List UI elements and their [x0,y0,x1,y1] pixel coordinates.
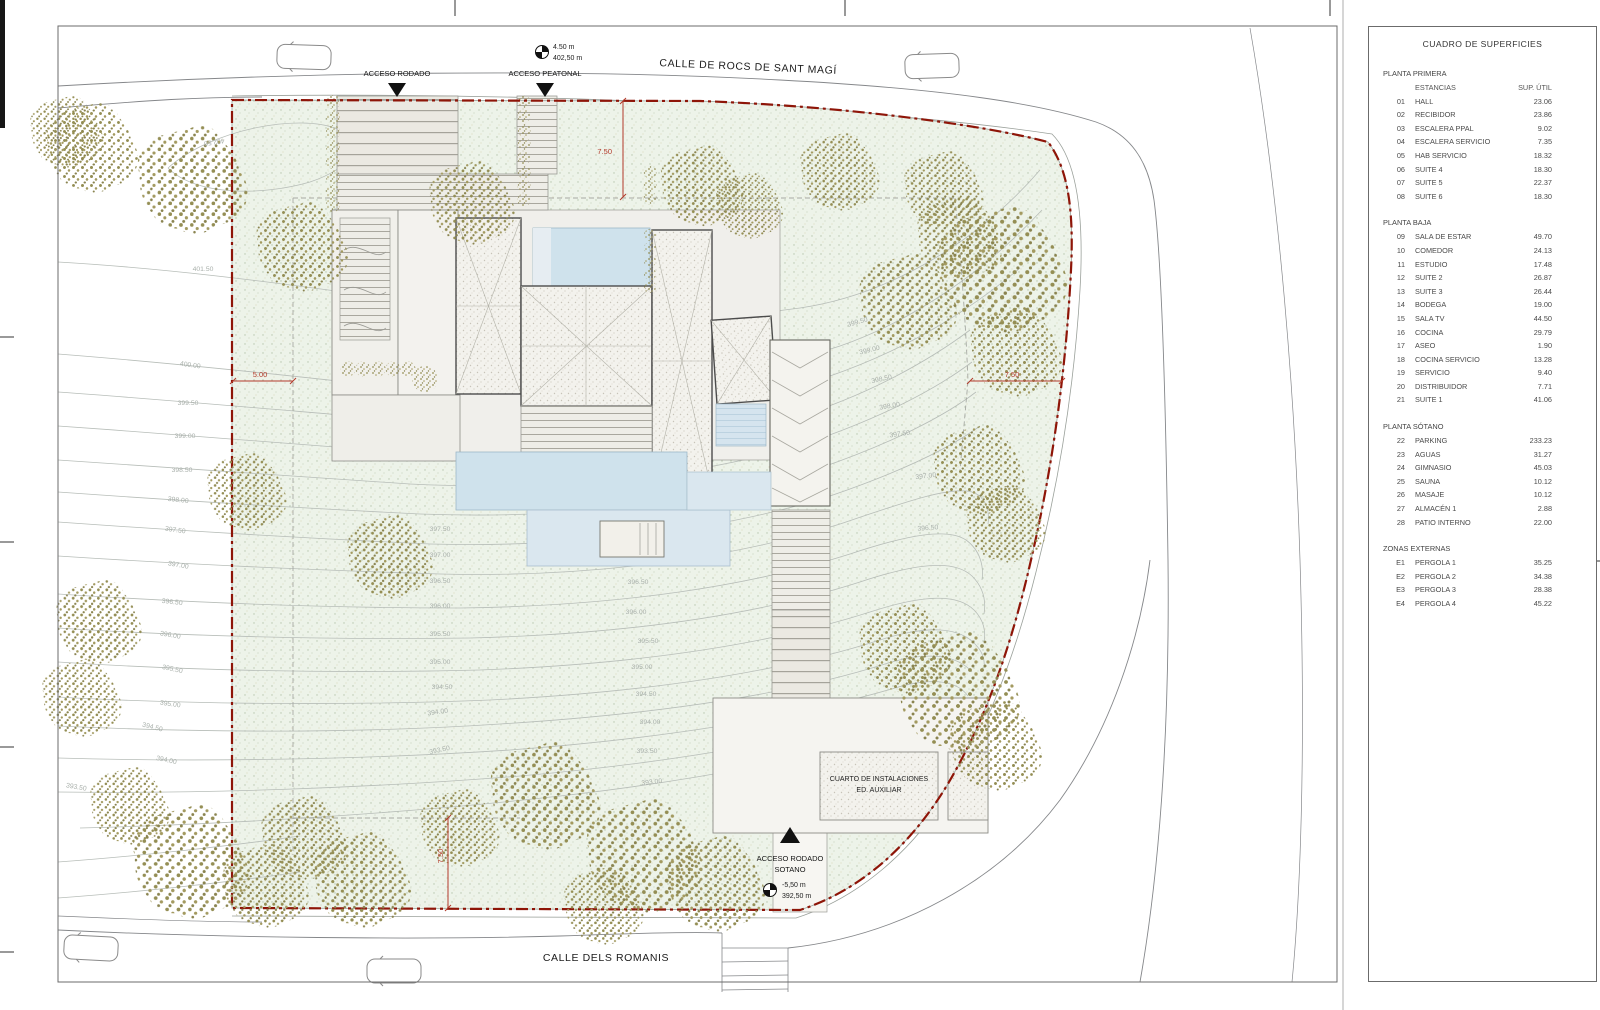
table-header-row: ESTANCIASSUP. ÚTIL [1369,83,1596,97]
room-area: 2.88 [1538,504,1552,513]
room-number: 23 [1383,450,1405,459]
room-number: 04 [1383,137,1405,146]
contour-label: 397.50 [164,526,186,536]
car-icon [63,932,118,965]
stair-main [340,218,390,340]
room-name: SALA DE ESTAR [1415,232,1471,241]
room-area: 18.32 [1534,151,1552,160]
roof-d [711,316,777,404]
car-icon [276,41,331,73]
contour-label: 395.00 [632,664,653,671]
table-row: 14BODEGA19.00 [1369,300,1596,314]
room-name: SUITE 4 [1415,165,1443,174]
pool-right-strip [687,472,771,510]
room-area: 1.90 [1538,341,1552,350]
table-row: 12SUITE 226.87 [1369,273,1596,287]
room-number: 10 [1383,246,1405,255]
contour-label: 395.50 [638,638,659,645]
room-number: 27 [1383,504,1405,513]
room-number: 21 [1383,395,1405,404]
room-area: 233.23 [1530,436,1552,445]
room-area: 9.02 [1538,124,1552,133]
table-row: 06SUITE 418.30 [1369,165,1596,179]
contour-label: 396.50 [161,598,183,607]
table-row: E2PERGOLA 234.38 [1369,572,1596,586]
table-row: 16COCINA29.79 [1369,328,1596,342]
room-name: SUITE 2 [1415,273,1443,282]
contour-label: 395.00 [159,700,181,710]
acceso-peatonal-label: ACCESO PEATONAL [508,69,581,78]
room-name: PERGOLA 3 [1415,585,1456,594]
table-row: 03ESCALERA PPAL9.02 [1369,124,1596,138]
table-row: 24GIMNASIO45.03 [1369,463,1596,477]
table-sections: PLANTA PRIMERAESTANCIASSUP. ÚTIL01HALL23… [1369,69,1596,613]
table-row: 22PARKING233.23 [1369,436,1596,450]
room-area: 23.06 [1534,97,1552,106]
contour-label: 400.00 [179,361,201,371]
table-row: E3PERGOLA 328.38 [1369,585,1596,599]
contour-label: 394.50 [636,691,657,698]
room-area: 10.12 [1534,477,1552,486]
room-area: 26.44 [1534,287,1552,296]
room-name: ESTUDIO [1415,260,1447,269]
room-name: GIMNASIO [1415,463,1452,472]
contour-label: 396.00 [159,630,181,641]
room-number: 01 [1383,97,1405,106]
table-row: E4PERGOLA 445.22 [1369,599,1596,613]
room-area: 45.03 [1534,463,1552,472]
room-name: SUITE 5 [1415,178,1443,187]
room-area: 31.27 [1534,450,1552,459]
aux-room [820,752,938,820]
room-number: 09 [1383,232,1405,241]
room-area: 23.86 [1534,110,1552,119]
level-marker-icon [536,46,549,59]
court-lower [332,395,460,461]
street-name-top: CALLE DE ROCS DE SANT MAGÍ [659,56,837,77]
room-number: 14 [1383,300,1405,309]
room-area: 44.50 [1534,314,1552,323]
room-area: 26.87 [1534,273,1552,282]
car-icon [904,50,959,82]
room-name: PATIO INTERNO [1415,518,1471,527]
contour-label: 397.50 [430,526,451,533]
table-section-title: PLANTA SÓTANO [1369,422,1596,431]
contour-label: 396.50 [430,578,451,585]
room-name: ESCALERA PPAL [1415,124,1474,133]
contour-label: 401.50 [193,266,214,273]
table-row: 13SUITE 326.44 [1369,287,1596,301]
room-name: MASAJE [1415,490,1444,499]
room-number: 25 [1383,477,1405,486]
table-row: 26MASAJE10.12 [1369,490,1596,504]
table-section-title: PLANTA PRIMERA [1369,69,1596,78]
contour-label: 394.00 [155,755,177,766]
contour-label: 394.50 [432,684,453,691]
contour-label: 394.00 [640,719,661,726]
table-row: 23AGUAS31.27 [1369,450,1596,464]
room-number: 26 [1383,490,1405,499]
room-area: 45.22 [1534,599,1552,608]
room-number: 13 [1383,287,1405,296]
room-area: SUP. ÚTIL [1518,83,1552,92]
room-number: 17 [1383,341,1405,350]
table-row: 25SAUNA10.12 [1369,477,1596,491]
table-row: 15SALA TV44.50 [1369,314,1596,328]
table-section: PLANTA SÓTANO22PARKING233.2323AGUAS31.27… [1369,422,1596,531]
acceso-peatonal-arrow [536,83,554,97]
contour-label: 395.50 [161,664,183,675]
aux-room-label2: ED. AUXILIAR [856,787,901,794]
table-row: 27ALMACÉN 12.88 [1369,504,1596,518]
room-number: E3 [1383,585,1405,594]
roof-b [521,286,652,406]
acceso-rodado-sotano-label: ACCESO RODADO [757,854,824,863]
table-row: 17ASEO1.90 [1369,341,1596,355]
site-plan: CALLE DE ROCS DE SANT MAGÍCALLE DELS ROM… [0,0,1600,1010]
room-name: PERGOLA 1 [1415,558,1456,567]
room-name: BODEGA [1415,300,1446,309]
street-name-bottom: CALLE DELS ROMANIS [543,952,669,964]
terrace-steps [521,406,652,452]
room-name: RECIBIDOR [1415,110,1456,119]
room-name: SUITE 6 [1415,192,1443,201]
contour-label: 393.50 [637,748,658,755]
room-name: ALMACÉN 1 [1415,504,1456,513]
room-area: 13.28 [1534,355,1552,364]
room-name: HALL [1415,97,1433,106]
room-area: 18.30 [1534,192,1552,201]
table-title: CUADRO DE SUPERFICIES [1369,39,1596,49]
table-row: 10COMEDOR24.13 [1369,246,1596,260]
level-marker-icon [764,884,777,897]
contour-label: 398.00 [167,496,189,505]
room-area: 29.79 [1534,328,1552,337]
room-area: 24.13 [1534,246,1552,255]
table-row: 19SERVICIO9.40 [1369,368,1596,382]
room-number: 06 [1383,165,1405,174]
room-area: 22.37 [1534,178,1552,187]
table-row: 11ESTUDIO17.48 [1369,260,1596,274]
room-number: 28 [1383,518,1405,527]
room-area: 19.00 [1534,300,1552,309]
driveway-ramp [337,96,458,174]
room-number: 08 [1383,192,1405,201]
pergola-east [770,340,830,506]
table-row: 20DISTRIBUIDOR7.71 [1369,382,1596,396]
room-number: 03 [1383,124,1405,133]
room-area: 9.40 [1538,368,1552,377]
room-name: ESCALERA SERVICIO [1415,137,1490,146]
drawing-sheet: CALLE DE ROCS DE SANT MAGÍCALLE DELS ROM… [0,0,1600,1010]
contour-label: 396.00 [626,609,647,616]
stairs-east-upper [772,510,830,610]
contour-label: 395.50 [430,631,451,638]
room-name: SERVICIO [1415,368,1450,377]
contour-label: 397.00 [167,560,189,571]
room-area: 49.70 [1534,232,1552,241]
level-bottom-height: -5,50 m [782,882,806,889]
room-number: 02 [1383,110,1405,119]
room-area: 17.48 [1534,260,1552,269]
contour-label: 393.50 [65,782,87,793]
dim-750-top: 7.50 [597,147,612,156]
contour-label: 396.50 [628,579,649,586]
room-name: PARKING [1415,436,1447,445]
room-number: E1 [1383,558,1405,567]
acceso-rodado-label: ACCESO RODADO [364,69,431,78]
room-number: 19 [1383,368,1405,377]
room-area: 10.12 [1534,490,1552,499]
contour-label: 398.50 [172,467,193,474]
room-number: 20 [1383,382,1405,391]
table-section-title: ZONAS EXTERNAS [1369,544,1596,553]
table-row: 18COCINA SERVICIO13.28 [1369,355,1596,369]
aux-room-label: CUARTO DE INSTALACIONES [830,776,929,783]
table-section-title: PLANTA BAJA [1369,218,1596,227]
room-name: COCINA SERVICIO [1415,355,1480,364]
contour-label: 395.00 [430,659,451,666]
table-row: 01HALL23.06 [1369,97,1596,111]
table-section: PLANTA PRIMERAESTANCIASSUP. ÚTIL01HALL23… [1369,69,1596,205]
table-row: 04ESCALERA SERVICIO7.35 [1369,137,1596,151]
room-number: 12 [1383,273,1405,282]
room-area: 22.00 [1534,518,1552,527]
table-row: 02RECIBIDOR23.86 [1369,110,1596,124]
room-number: E2 [1383,572,1405,581]
room-name: PERGOLA 4 [1415,599,1456,608]
pool-main [456,452,687,510]
table-row: 09SALA DE ESTAR49.70 [1369,232,1596,246]
room-number: 07 [1383,178,1405,187]
table-row: 28PATIO INTERNO22.00 [1369,518,1596,532]
table-row: 07SUITE 522.37 [1369,178,1596,192]
room-number: 18 [1383,355,1405,364]
level-top-height: 4.50 m [553,44,575,51]
room-area: 7.71 [1538,382,1552,391]
room-number: 05 [1383,151,1405,160]
room-area: 7.35 [1538,137,1552,146]
acceso-sotano-label2: SOTANO [774,865,805,874]
table-row: E1PERGOLA 135.25 [1369,558,1596,572]
room-area: 35.25 [1534,558,1552,567]
room-area: 18.30 [1534,165,1552,174]
roof-a [456,218,521,394]
room-number: 11 [1383,260,1405,269]
room-number: 24 [1383,463,1405,472]
contour-label: 399.00 [175,433,196,440]
table-row: 05HAB SERVICIO18.32 [1369,151,1596,165]
spa-box [600,521,664,557]
room-number: 16 [1383,328,1405,337]
table-section: ZONAS EXTERNASE1PERGOLA 135.25E2PERGOLA … [1369,544,1596,612]
table-section: PLANTA BAJA09SALA DE ESTAR49.7010COMEDOR… [1369,218,1596,409]
room-name: ASEO [1415,341,1435,350]
fold-mark [0,0,5,128]
room-name: SAUNA [1415,477,1440,486]
table-row: 21SUITE 141.06 [1369,395,1596,409]
room-name: ESTANCIAS [1415,83,1456,92]
road-far-right-line [1250,28,1302,982]
room-name: COMEDOR [1415,246,1453,255]
table-row: 08SUITE 618.30 [1369,192,1596,206]
water-feature [716,404,766,446]
room-name: DISTRIBUIDOR [1415,382,1467,391]
room-area: 41.06 [1534,395,1552,404]
room-number: E4 [1383,599,1405,608]
room-area: 34.38 [1534,572,1552,581]
room-name: AGUAS [1415,450,1441,459]
contour-label: 399.50 [178,400,199,407]
dim-750-bottom: 7.50 [436,849,445,864]
acceso-rodado-arrow [388,83,406,97]
level-bottom-elevation: 392,50 m [782,893,811,900]
contour-label: 394.50 [141,722,163,734]
dim-750-right: 7.50 [1005,370,1020,379]
room-name: HAB SERVICIO [1415,151,1467,160]
room-number: 15 [1383,314,1405,323]
contour-label: 396.00 [430,603,451,610]
room-name: COCINA [1415,328,1443,337]
room-name: SALA TV [1415,314,1444,323]
surface-table-panel: CUADRO DE SUPERFICIES PLANTA PRIMERAESTA… [1368,26,1597,982]
room-number: 22 [1383,436,1405,445]
room-name: SUITE 1 [1415,395,1443,404]
road-bottom-left-line [58,916,262,922]
room-name: SUITE 3 [1415,287,1443,296]
level-top-elevation: 402,50 m [553,55,582,62]
contour-label: 397.00 [430,552,451,559]
dim-5m: 5.00 [253,370,268,379]
contour-label: 396.50 [917,524,938,532]
room-area: 28.38 [1534,585,1552,594]
parking-bays [722,933,788,992]
room-name: PERGOLA 2 [1415,572,1456,581]
